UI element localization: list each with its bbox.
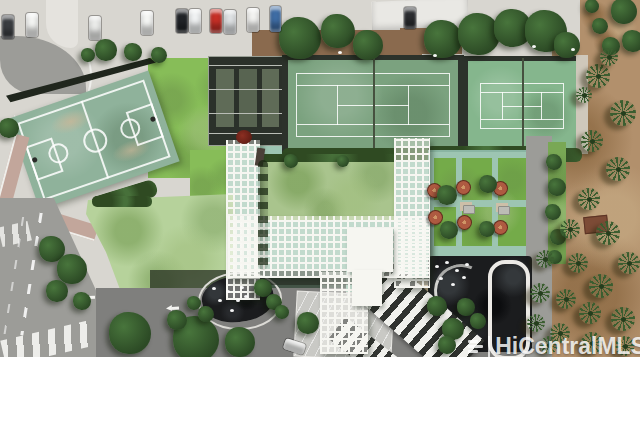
- palm-tree: [596, 221, 620, 245]
- tree: [297, 312, 319, 334]
- tree: [622, 30, 640, 52]
- frame-beam: [209, 113, 285, 114]
- patio-umbrella: [457, 215, 472, 230]
- tennis-net: [373, 56, 375, 154]
- tree: [109, 312, 151, 354]
- car: [141, 11, 153, 35]
- tree: [545, 204, 561, 220]
- tree: [284, 154, 298, 168]
- tree: [424, 20, 462, 58]
- glass-panel: [216, 69, 234, 127]
- tree: [187, 296, 201, 310]
- picnic-table: [463, 205, 475, 214]
- water-sparkle: [571, 48, 575, 51]
- tree: [546, 154, 562, 170]
- car: [270, 6, 281, 32]
- tree: [0, 118, 19, 138]
- palm-tree: [589, 274, 613, 298]
- palm-tree: [530, 283, 550, 303]
- car: [176, 9, 188, 33]
- water-sparkle: [218, 299, 222, 302]
- water-sparkle: [435, 265, 439, 268]
- tree: [440, 221, 458, 239]
- palm-tree: [611, 307, 635, 331]
- car: [26, 13, 38, 37]
- tree: [470, 313, 486, 329]
- tree: [167, 310, 187, 330]
- palm-tree: [586, 64, 610, 88]
- tree: [353, 30, 383, 60]
- frame-beam: [209, 65, 285, 66]
- tree: [46, 280, 68, 302]
- tree: [479, 175, 497, 193]
- palm-tree: [610, 100, 636, 126]
- palm-tree: [581, 130, 603, 152]
- palm-tree: [576, 87, 592, 103]
- palm-tree: [556, 289, 576, 309]
- frame-beam: [209, 89, 285, 90]
- tree: [321, 14, 355, 48]
- patio-umbrella: [493, 220, 508, 235]
- central-lawn: [260, 162, 396, 220]
- red-flower-bush: [236, 130, 252, 144]
- tree: [279, 17, 321, 59]
- screenshot: HiCentralMLS: [0, 0, 640, 426]
- tree: [585, 0, 599, 13]
- roof-hedge: [92, 196, 152, 207]
- tree: [438, 336, 456, 354]
- tennis-court-left: [288, 60, 458, 150]
- patio-umbrella: [456, 180, 471, 195]
- glass-panel: [239, 69, 257, 127]
- pergola-solid-roof: [352, 270, 382, 306]
- water-sparkle: [439, 277, 443, 280]
- palm-tree: [618, 252, 640, 274]
- water-sparkle: [244, 295, 248, 298]
- car: [224, 10, 236, 34]
- car: [2, 15, 14, 39]
- lattice-plant-shadow: [258, 160, 268, 270]
- tree: [427, 296, 447, 316]
- tennis-net: [522, 58, 524, 154]
- water-sparkle: [212, 287, 216, 290]
- tree: [95, 39, 117, 61]
- tree: [592, 18, 608, 34]
- car: [89, 16, 101, 40]
- car: [189, 9, 201, 33]
- tree: [57, 254, 87, 284]
- tree: [151, 47, 167, 63]
- tree: [275, 305, 289, 319]
- car: [210, 9, 222, 33]
- water-sparkle: [465, 263, 469, 266]
- patio-umbrella: [428, 210, 443, 225]
- tennis-court-right: [468, 61, 576, 151]
- water-sparkle: [338, 51, 342, 54]
- tree: [124, 43, 142, 61]
- water-sparkle: [230, 309, 234, 312]
- tree: [198, 306, 214, 322]
- tree: [81, 48, 95, 62]
- water-sparkle: [433, 54, 437, 57]
- tree: [337, 155, 349, 167]
- pergola-solid-roof: [347, 228, 393, 272]
- palm-tree: [536, 250, 554, 268]
- water-sparkle: [236, 299, 240, 302]
- picnic-table: [498, 206, 510, 215]
- mls-logo-icon: [468, 340, 483, 353]
- water-sparkle: [462, 276, 466, 279]
- tree: [548, 178, 566, 196]
- palm-tree: [560, 219, 580, 239]
- tree: [437, 185, 457, 205]
- palm-tree: [600, 48, 618, 66]
- tree: [225, 327, 255, 357]
- watermark-divider: [488, 336, 490, 357]
- watermark: HiCentralMLS: [468, 335, 640, 357]
- palm-tree: [578, 188, 600, 210]
- glass-panel: [262, 69, 279, 127]
- palm-tree: [568, 253, 588, 273]
- water-sparkle: [226, 290, 230, 293]
- palm-tree: [579, 302, 601, 324]
- car: [404, 7, 416, 29]
- water-sparkle: [532, 45, 536, 48]
- palm-tree: [606, 157, 630, 181]
- aerial-photo: HiCentralMLS: [0, 0, 640, 357]
- water-sparkle: [240, 286, 244, 289]
- watermark-text: HiCentralMLS: [495, 335, 640, 357]
- tree: [554, 32, 580, 58]
- tree: [479, 221, 495, 237]
- tree: [611, 0, 637, 24]
- water-sparkle: [455, 269, 459, 272]
- palm-tree: [527, 314, 545, 332]
- car: [247, 8, 259, 32]
- water-sparkle: [451, 283, 455, 286]
- water-sparkle: [445, 261, 449, 264]
- tree: [73, 292, 91, 310]
